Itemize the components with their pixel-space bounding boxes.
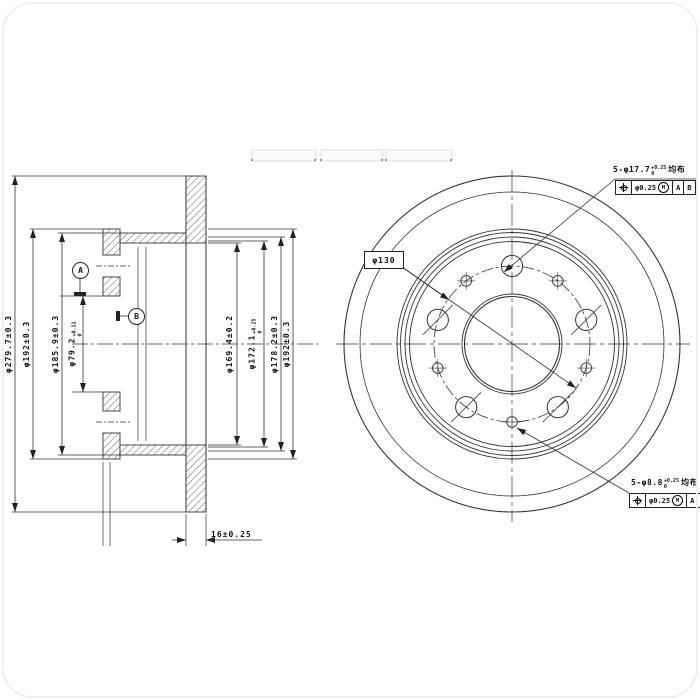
dim-thickness: 16±0.25 <box>211 531 252 539</box>
front-centerlines <box>336 170 690 522</box>
dim-center-bore: φ79.2+0.110 <box>68 321 84 366</box>
dim-recess: φ178.2±0.3 <box>271 315 279 373</box>
fcf-datum-1: A <box>673 181 684 194</box>
dim-pilot: φ172.1+0.250 <box>248 319 264 370</box>
callout-small-holes: 5-φ8.8+0.250均布 <box>631 479 698 491</box>
position-symbol-icon <box>630 494 646 507</box>
dim-hat-id: φ169.4±0.2 <box>226 315 234 373</box>
dim-flange-od: φ192±0.3 <box>23 321 31 368</box>
header-boxes <box>251 150 452 161</box>
dim-flange-od-right: φ192±0.3 <box>283 321 291 368</box>
material-modifier-icon: M <box>658 182 669 193</box>
drawing-linework <box>0 0 700 700</box>
technical-drawing-brake-disc: φ279.7±0.3 φ192±0.3 φ185.9±0.3 φ79.2+0.1… <box>0 0 700 700</box>
datum-b-balloon: B <box>128 308 145 325</box>
fcf-tolerance: φ0.25M <box>632 181 673 194</box>
fcf-bolt-holes: φ0.25M A B <box>615 180 696 195</box>
bolt-circle-label: φ130 <box>364 251 404 269</box>
callout-bolt-holes: 5-φ17.7+0.250均布 <box>613 166 685 178</box>
fcf-small-holes: φ0.25M A B <box>629 493 700 508</box>
datum-a-tick <box>74 292 86 296</box>
datum-b-tick <box>116 311 120 321</box>
dim-disc-od: φ279.7±0.3 <box>5 315 13 373</box>
fcf-tolerance: φ0.25M <box>646 494 687 507</box>
position-symbol-icon <box>616 181 632 194</box>
datum-a-balloon: A <box>72 262 89 279</box>
dim-hat-od: φ185.9±0.3 <box>52 315 60 373</box>
material-modifier-icon: M <box>672 495 683 506</box>
fcf-datum-1: A <box>687 494 698 507</box>
front-view <box>336 170 698 522</box>
leader-lines <box>402 179 698 493</box>
fcf-datum-2: B <box>684 181 694 194</box>
